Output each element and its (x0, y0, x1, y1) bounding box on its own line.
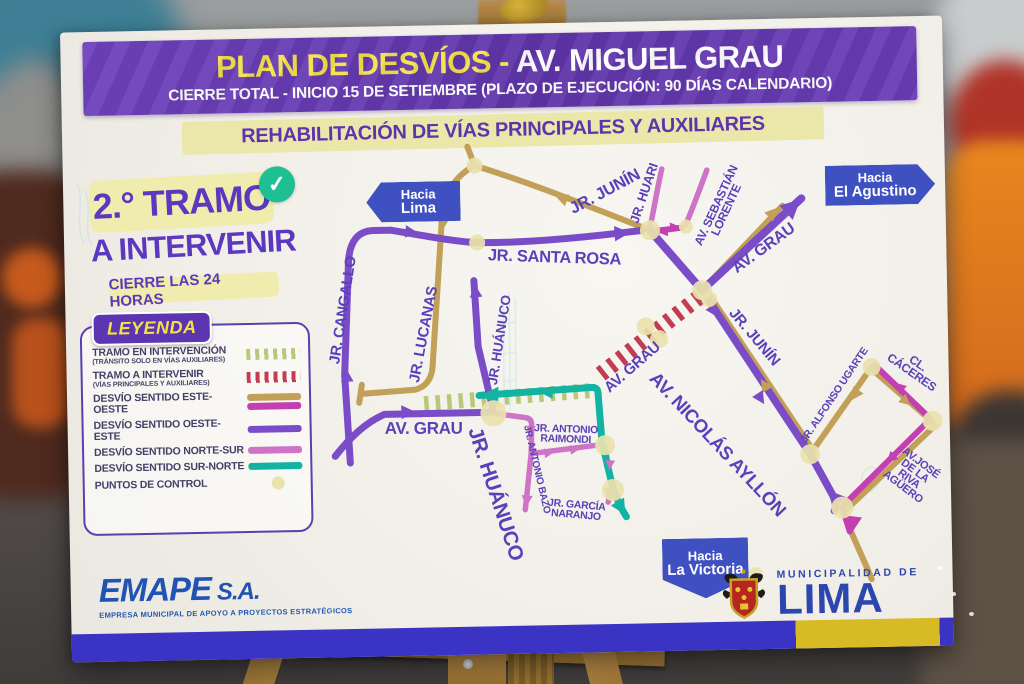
legend-rows: TRAMO EN INTERVENCIÓN(TRÁNSITO SOLO EN V… (92, 344, 303, 498)
legend-item-5: DESVÍO SENTIDO SUR-NORTE (94, 460, 302, 475)
sign-hacia-el-agustino: HaciaEl Agustino (825, 164, 936, 206)
emape-logo: EMAPE S.A. EMPRESA MUNICIPAL DE APOYO A … (98, 567, 352, 620)
legend-item-4: DESVÍO SENTIDO NORTE-SUR (94, 444, 302, 459)
easel-slats (508, 652, 554, 684)
legend-item-2: DESVÍO SENTIDO ESTE-OESTE (93, 390, 301, 416)
sign-hacia-lima: HaciaLima (366, 181, 461, 223)
legend-item-0: TRAMO EN INTERVENCIÓN(TRÁNSITO SOLO EN V… (92, 344, 300, 366)
lima-coat-of-arms-icon (718, 567, 769, 622)
traffic-cone-blob-2 (12, 318, 70, 428)
traffic-cone-blob (2, 248, 62, 308)
tramo-highlight: 2.° TRAMO (88, 171, 275, 233)
legend-box: LEYENDA TRAMO EN INTERVENCIÓN(TRÁNSITO S… (80, 322, 314, 536)
legend-item-3: DESVÍO SENTIDO OESTE-ESTE (93, 417, 301, 443)
legend-item-6: PUNTOS DE CONTROL (95, 476, 303, 493)
detour-plan-board: PLAN DE DESVÍOS - AV. MIGUEL GRAU CIERRE… (60, 16, 954, 663)
easel-screw (463, 659, 473, 669)
tramo-line3: CIERRE LAS 24 HORAS (108, 271, 279, 305)
easel-center-block (448, 650, 506, 684)
photo-of-detour-plan-board: PLAN DE DESVÍOS - AV. MIGUEL GRAU CIERRE… (0, 0, 1024, 684)
municipality-logo: MUNICIPALIDAD DE LIMA (718, 564, 919, 622)
legend-item-1: TRAMO A INTERVENIR(VÍAS PRINCIPALES Y AU… (93, 367, 301, 389)
legend-title: LEYENDA (91, 311, 212, 346)
